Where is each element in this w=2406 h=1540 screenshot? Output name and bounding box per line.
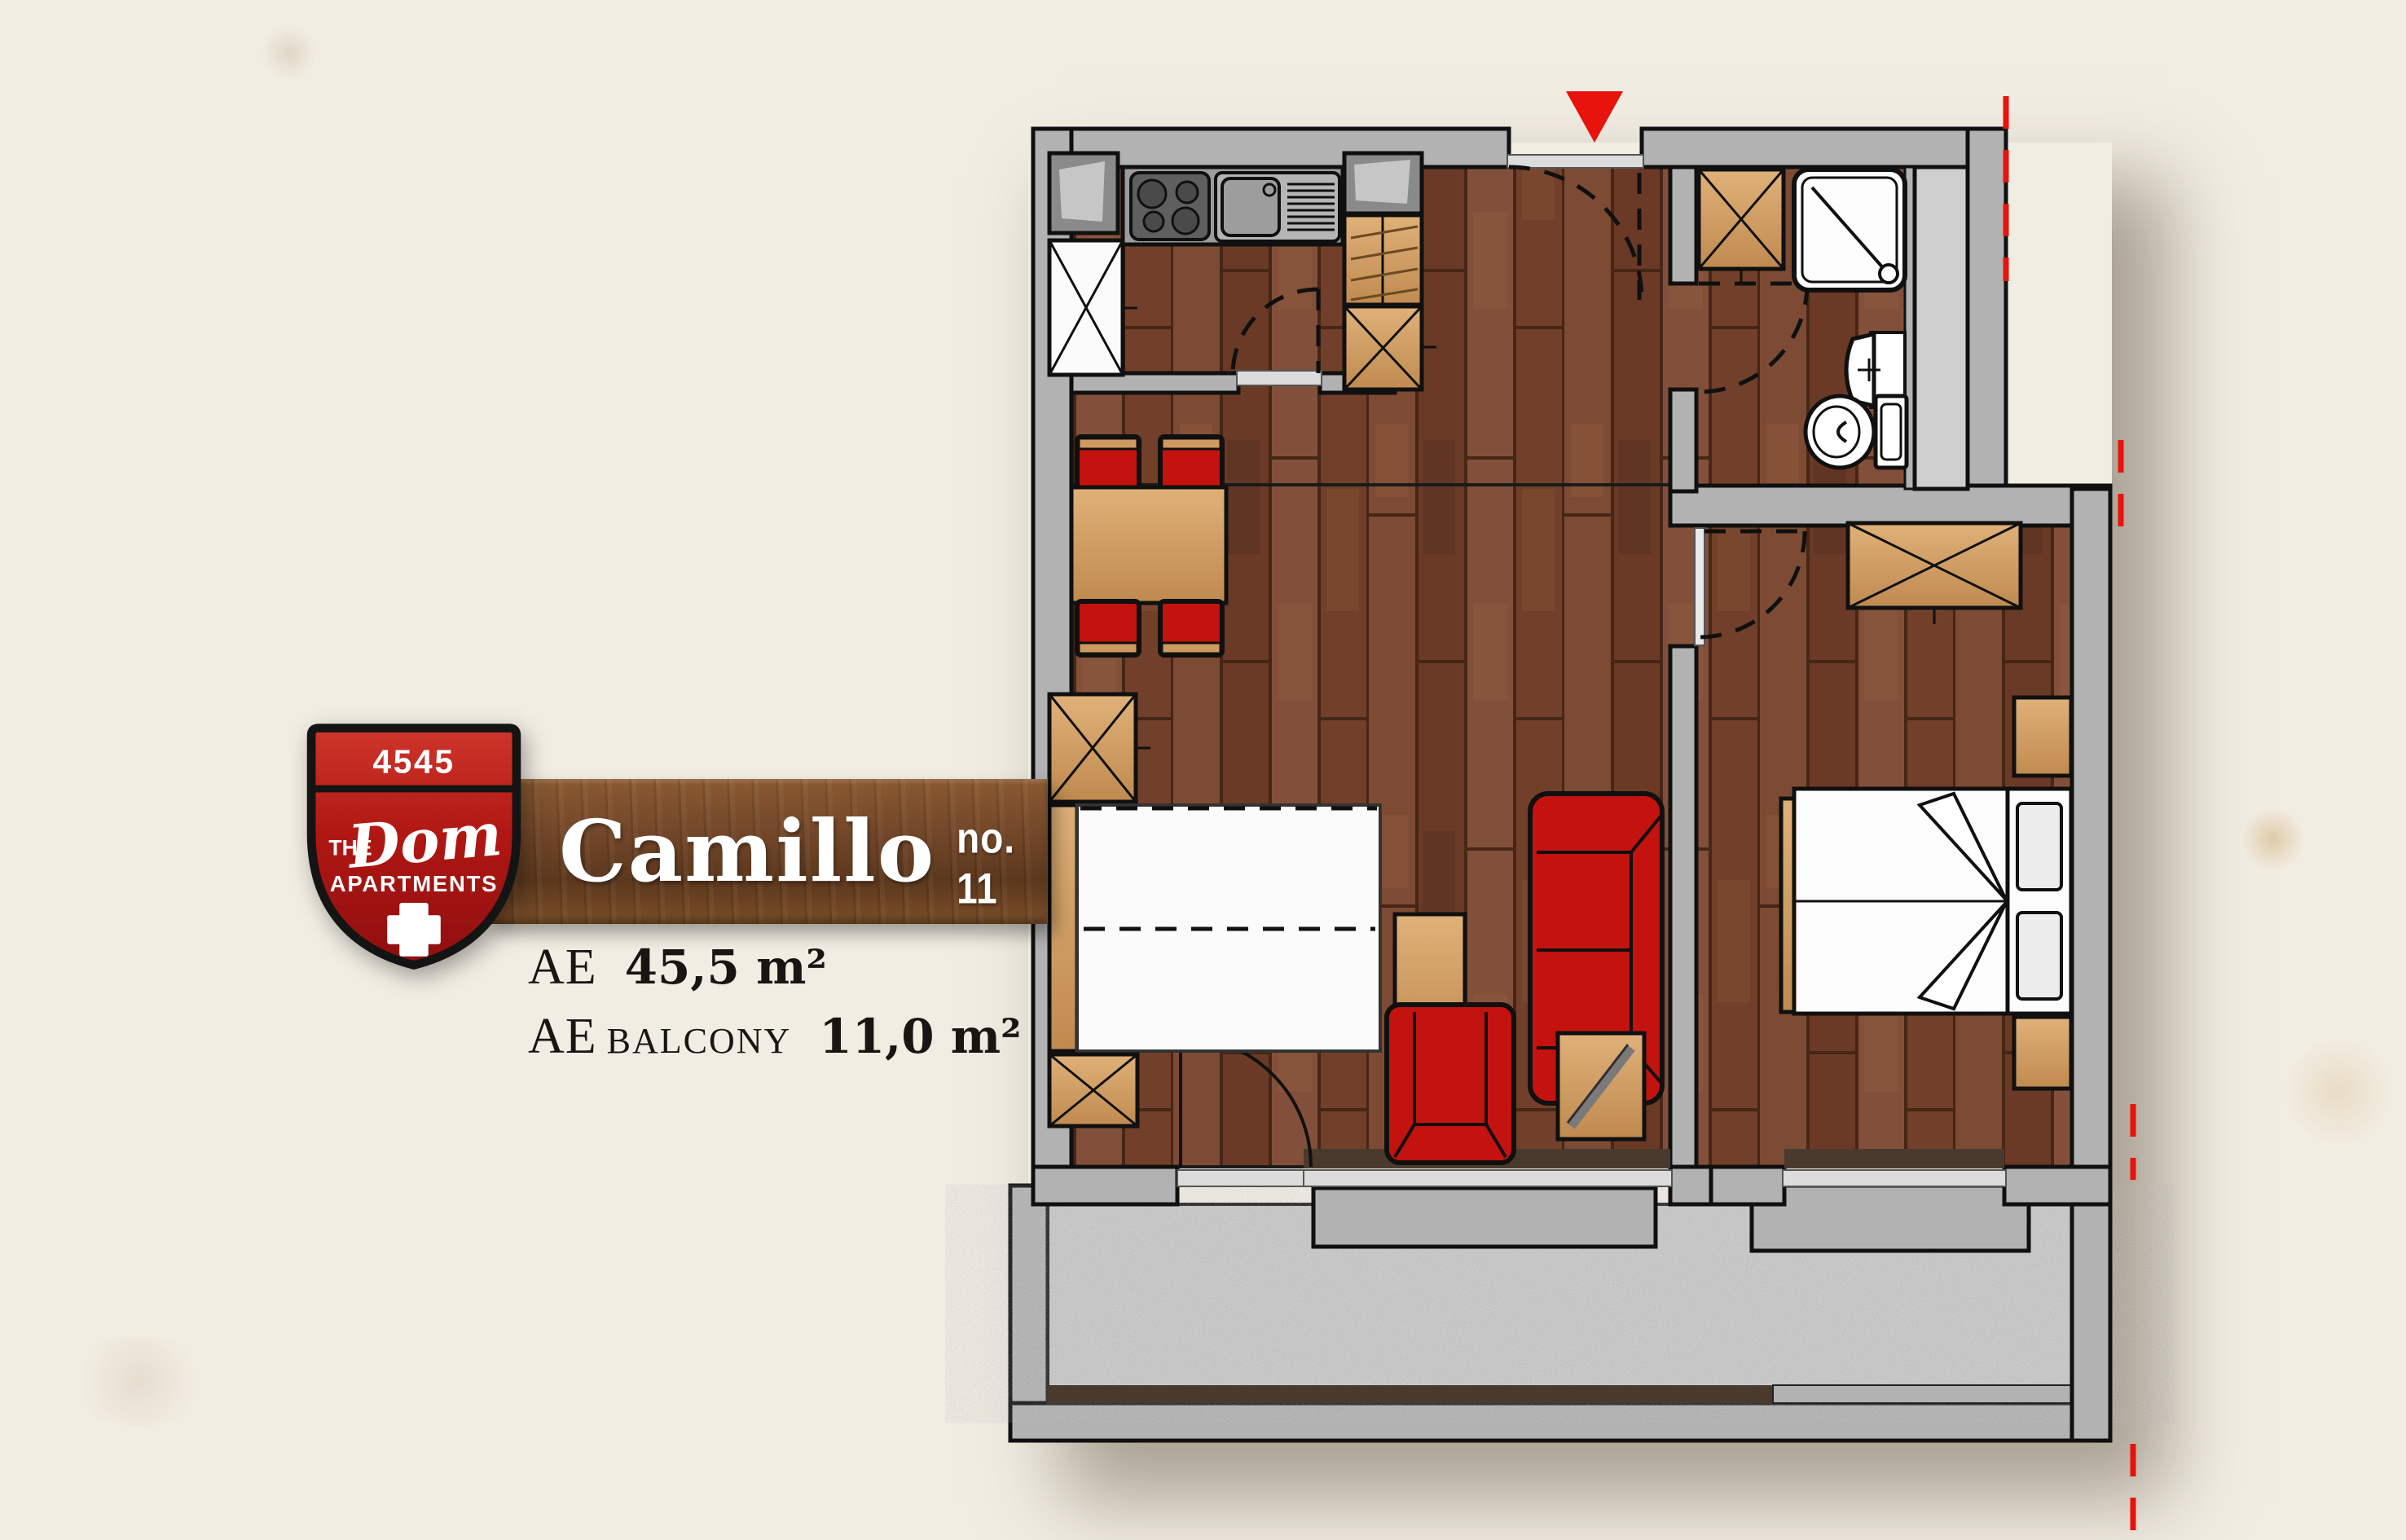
wall-hall-divider-a — [1670, 167, 1696, 284]
nightstand — [2014, 697, 2071, 776]
bedroom-window-threshold — [1784, 1149, 2004, 1168]
wall-top-right — [1642, 129, 2006, 167]
wall-bottom-left — [1033, 1167, 1177, 1204]
bedroom-window-step — [1752, 1186, 2029, 1251]
burner — [1138, 180, 1166, 208]
wall-bedroom-right — [2072, 489, 2110, 1441]
wall-right-upper — [1968, 129, 2006, 526]
apartment-unit-number: no. 11 — [957, 812, 1048, 913]
living-window-sill — [1302, 1170, 1672, 1186]
pillow — [2017, 803, 2061, 890]
bedroom-sliding-door — [1695, 528, 1704, 645]
balcony-door-sill — [1177, 1170, 1304, 1186]
burner — [1177, 182, 1198, 203]
balcony-edge-strip — [1048, 1385, 1773, 1403]
chair-top — [1079, 438, 1137, 449]
chair-top — [1079, 643, 1137, 653]
area-row-total: AE 45,5 m² — [528, 939, 1022, 997]
apartment-name-banner: Camillo no. 11 — [487, 779, 1048, 924]
kitchen-passage-sill — [1237, 371, 1322, 385]
sofabed-headboard — [1049, 805, 1077, 1051]
area-label: AE — [528, 939, 597, 997]
badge-name: Dom — [344, 800, 504, 882]
wall-bedroom-bottom-b — [2004, 1167, 2110, 1204]
brand-shield-icon: 4545 THE Dom APARTMENTS — [306, 717, 522, 976]
nightstand — [2014, 1017, 2071, 1089]
burner — [1144, 212, 1163, 231]
wall-hall-divider-b — [1670, 389, 1696, 491]
badge-apartments: APARTMENTS — [330, 871, 498, 896]
area-label: AE — [528, 1008, 597, 1066]
entry-arrow-icon — [1566, 91, 1623, 143]
burner — [1172, 208, 1199, 234]
area-info: AE 45,5 m² AE BALCONY 11,0 m² — [528, 939, 1022, 1077]
sink-basin — [1222, 178, 1279, 235]
dining-table — [1071, 487, 1226, 603]
chair-top — [1162, 643, 1221, 653]
apartment-name: Camillo — [559, 809, 935, 894]
area-value: 11,0 m² — [819, 1009, 1021, 1064]
area-value: 45,5 m² — [625, 939, 827, 995]
area-sublabel: BALCONY — [607, 1020, 792, 1062]
balcony-wall-bottom — [1010, 1403, 2110, 1441]
badge-number: 4545 — [372, 743, 455, 781]
living-window-step — [1313, 1188, 1656, 1247]
duct-shaft — [1915, 167, 1968, 489]
area-row-balcony: AE BALCONY 11,0 m² — [528, 1008, 1022, 1066]
kitchen-appliance-door — [1354, 160, 1410, 204]
wall-bottom-pier — [1670, 1167, 1715, 1204]
wall-bedroom-top — [1670, 486, 2110, 526]
wall-hall-divider-c — [1670, 646, 1696, 1167]
entry-sill — [1507, 155, 1643, 168]
bedroom-window-sill — [1783, 1170, 2006, 1186]
pillow — [2017, 913, 2061, 999]
balcony-edge-strip-gray — [1773, 1385, 2072, 1403]
shower-drain — [1880, 265, 1898, 283]
fridge-door — [1059, 161, 1105, 222]
wall-bedroom-bottom-a — [1711, 1167, 1784, 1204]
chair-top — [1162, 438, 1221, 449]
